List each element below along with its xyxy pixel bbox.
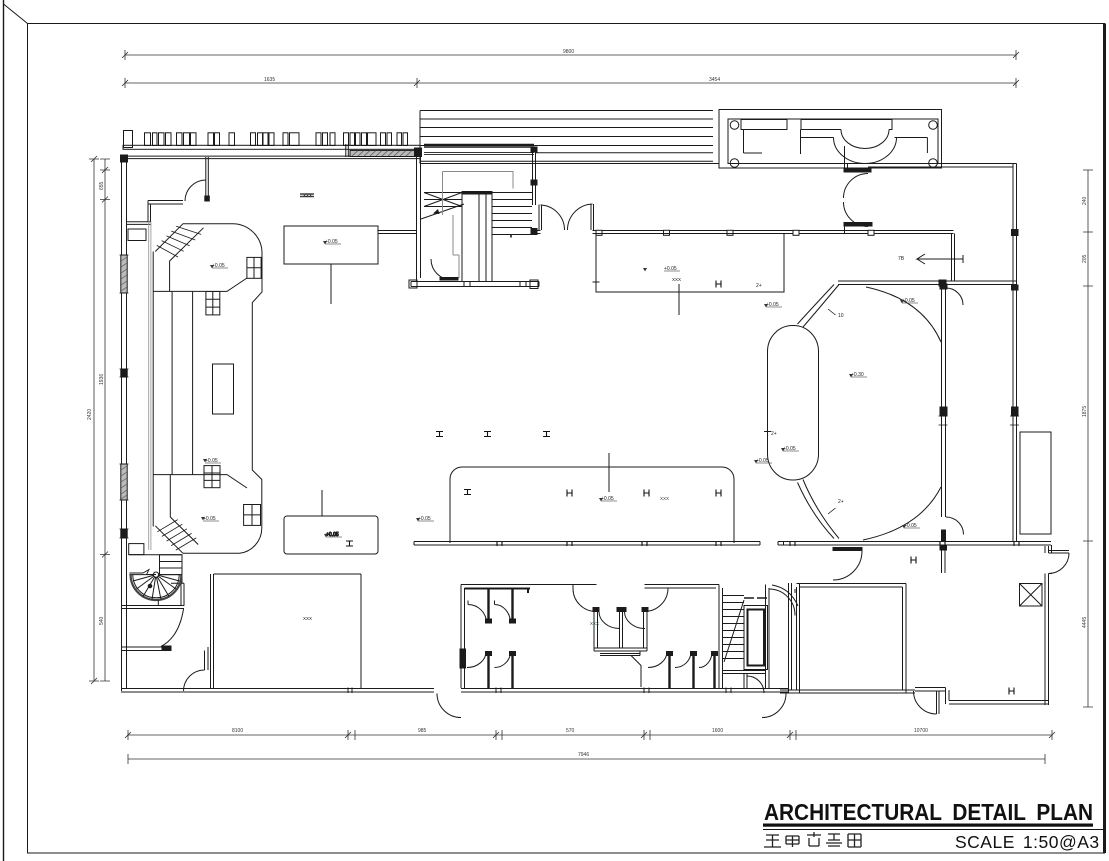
svg-text:SCALE 1:50@A3: SCALE 1:50@A3 — [955, 832, 1100, 852]
svg-text:540: 540 — [99, 616, 105, 625]
svg-text:10: 10 — [838, 313, 844, 319]
svg-text:10700: 10700 — [914, 728, 928, 734]
svg-text:2+: 2+ — [771, 431, 777, 437]
svg-text:1600: 1600 — [712, 728, 723, 734]
svg-text:985: 985 — [418, 728, 427, 734]
svg-text:4445: 4445 — [1082, 617, 1088, 628]
svg-text:8100: 8100 — [232, 728, 243, 734]
svg-text:2+: 2+ — [838, 499, 844, 505]
svg-text:ARCHITECTURAL DETAIL PLAN: ARCHITECTURAL DETAIL PLAN — [764, 799, 1093, 825]
svg-text:2+: 2+ — [756, 283, 762, 289]
svg-text:655: 655 — [99, 181, 105, 190]
svg-text:205: 205 — [1082, 254, 1088, 263]
svg-text:XXX: XXX — [590, 621, 599, 626]
svg-text:570: 570 — [566, 728, 575, 734]
svg-text:3454: 3454 — [709, 77, 720, 83]
svg-text:XXX: XXX — [303, 193, 312, 198]
svg-text:XXX: XXX — [660, 496, 669, 501]
svg-text:9800: 9800 — [563, 49, 574, 55]
svg-text:1635: 1635 — [264, 77, 275, 83]
svg-text:240: 240 — [1082, 196, 1088, 205]
svg-text:7B: 7B — [898, 256, 905, 262]
svg-text:2420: 2420 — [87, 409, 93, 420]
svg-text:1936: 1936 — [99, 374, 105, 385]
svg-text:7946: 7946 — [578, 752, 589, 758]
svg-text:XXX: XXX — [672, 277, 681, 282]
svg-text:1875: 1875 — [1082, 406, 1088, 417]
svg-text:XXX: XXX — [303, 616, 312, 621]
